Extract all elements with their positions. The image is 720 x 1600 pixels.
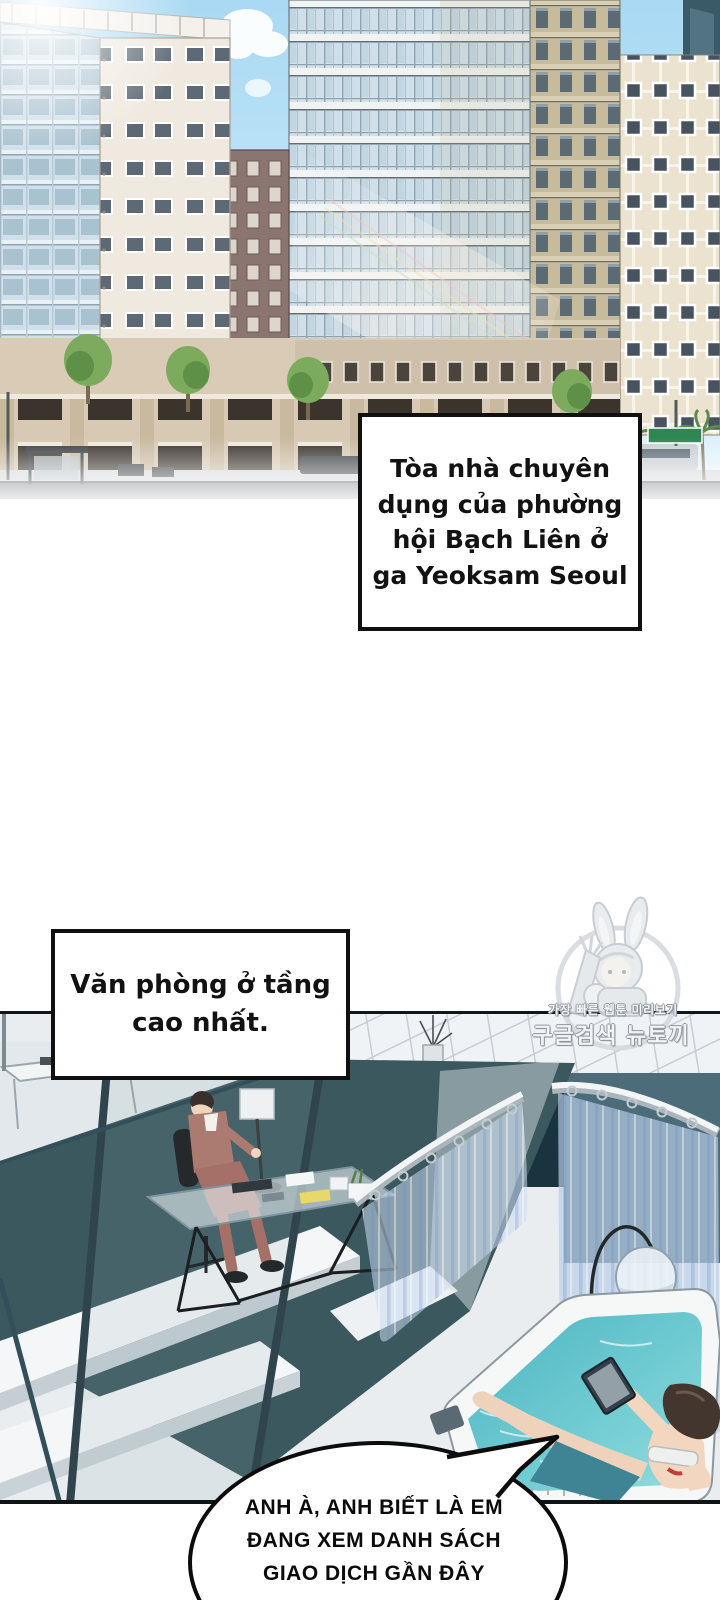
watermark-tagline: 가장 빠른 웹툰 미리보기 [508,1001,718,1018]
speech-bubble-text: ANH À, ANH BIẾT LÀ EM ĐANG XEM DANH SÁCH… [206,1491,542,1590]
bunny-girl [568,896,651,1016]
cream-tower [620,55,720,435]
caption-office-box: Văn phòng ở tầng cao nhất. [51,929,350,1080]
caption-location-box: Tòa nhà chuyên dụng của phường hội Bạch … [358,413,642,631]
left-tower [0,0,230,345]
office-panel [0,1011,720,1504]
watermark-brand: 구글검색 뉴토끼 [503,1018,719,1050]
comic-page: Tòa nhà chuyên dụng của phường hội Bạch … [0,0,720,1600]
watermark-mascot [540,880,720,1080]
